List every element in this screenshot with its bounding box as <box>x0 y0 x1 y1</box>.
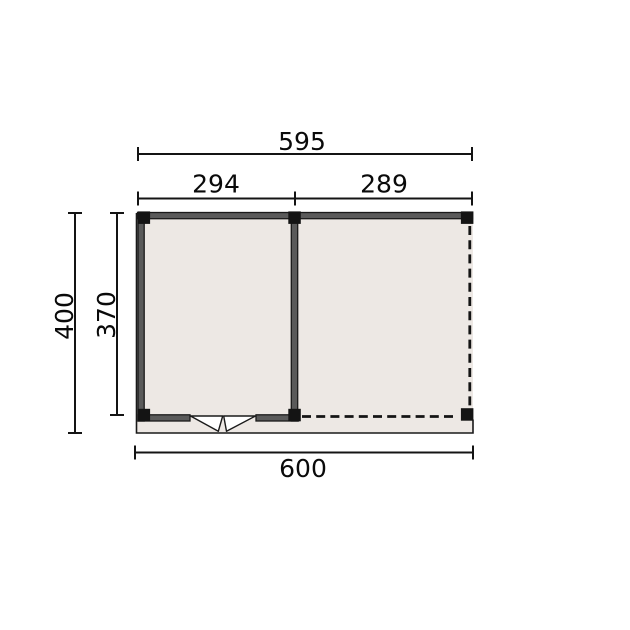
dim-label-section-left-width: 294 <box>192 170 240 199</box>
post-bottom-right <box>461 408 474 421</box>
dimension-total-depth: 400 <box>50 213 82 433</box>
dimension-base-width: 600 <box>135 446 473 484</box>
dim-label-base-width: 600 <box>279 454 327 483</box>
post-top-middle <box>288 211 301 224</box>
floorplan-drawing: 595 294 289 400 370 <box>0 0 630 630</box>
dim-label-total-depth: 400 <box>50 292 79 340</box>
post-bottom-middle <box>288 409 301 422</box>
wall-left <box>138 213 144 421</box>
base-slab-fill <box>137 213 474 433</box>
dimension-inner-depth: 370 <box>92 213 124 415</box>
post-top-right <box>461 211 474 224</box>
dimension-section-widths: 294 289 <box>138 170 472 206</box>
floorplan-canvas: 595 294 289 400 370 <box>0 0 630 630</box>
dim-label-section-right-width: 289 <box>360 170 408 199</box>
wall-top <box>138 213 473 219</box>
dim-label-overall-width: 595 <box>278 127 326 156</box>
wall-middle <box>291 213 297 421</box>
dimension-overall-width: 595 <box>138 127 472 161</box>
post-bottom-left <box>138 409 151 422</box>
post-top-left <box>138 211 151 224</box>
dim-label-inner-depth: 370 <box>92 291 121 339</box>
